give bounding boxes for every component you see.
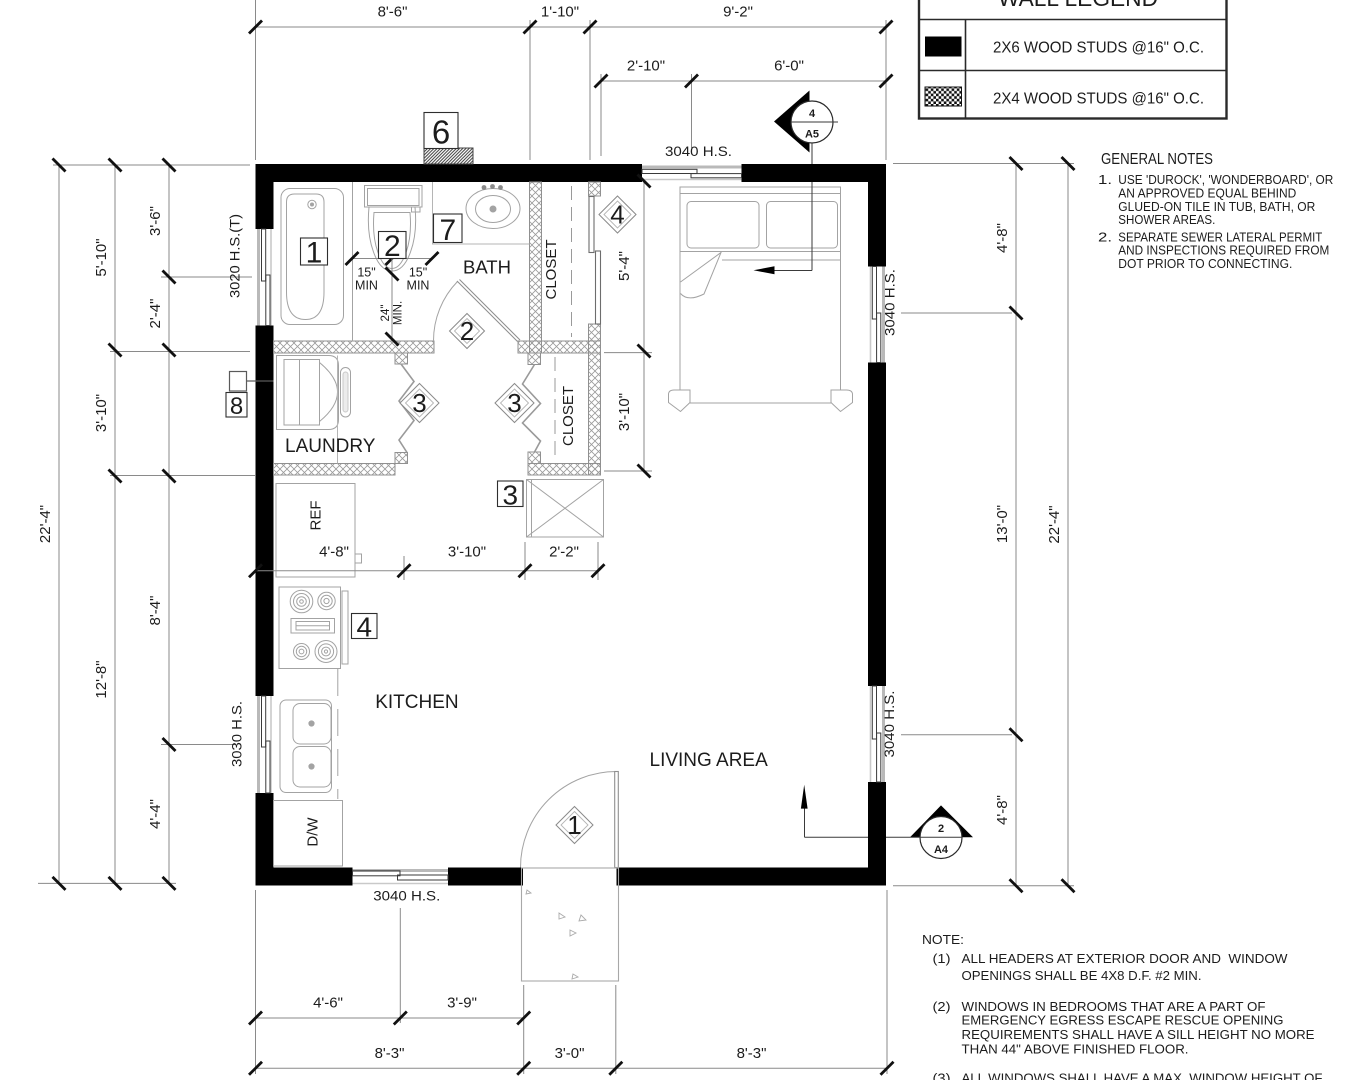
svg-text:MIN: MIN xyxy=(407,279,430,293)
svg-text:WALL LEGEND: WALL LEGEND xyxy=(998,0,1158,11)
svg-text:ALL HEADERS AT EXTERIOR DOOR A: ALL HEADERS AT EXTERIOR DOOR AND WINDOW xyxy=(962,951,1289,966)
svg-text:8'-6": 8'-6" xyxy=(378,4,408,21)
svg-text:1: 1 xyxy=(567,810,581,840)
svg-text:(1): (1) xyxy=(933,951,951,966)
svg-text:CLOSET: CLOSET xyxy=(560,386,577,446)
svg-text:BATH: BATH xyxy=(463,257,511,278)
svg-text:MIN: MIN xyxy=(355,279,378,293)
svg-text:1: 1 xyxy=(306,237,323,270)
svg-text:LAUNDRY: LAUNDRY xyxy=(285,436,376,457)
svg-text:4'-8": 4'-8" xyxy=(994,795,1011,825)
svg-text:13'-0": 13'-0" xyxy=(994,505,1011,543)
svg-text:A4: A4 xyxy=(934,844,949,856)
svg-text:GENERAL NOTES: GENERAL NOTES xyxy=(1101,151,1213,168)
svg-text:6'-0": 6'-0" xyxy=(774,58,804,75)
svg-text:3: 3 xyxy=(412,388,426,418)
svg-text:6: 6 xyxy=(432,114,450,151)
svg-text:4: 4 xyxy=(610,200,624,230)
svg-text:3: 3 xyxy=(503,480,519,511)
svg-text:2: 2 xyxy=(460,316,474,346)
svg-text:3: 3 xyxy=(507,388,521,418)
svg-text:LIVING AREA: LIVING AREA xyxy=(650,750,769,771)
svg-text:4'-8": 4'-8" xyxy=(994,223,1011,253)
svg-text:2: 2 xyxy=(384,230,401,263)
svg-text:1.: 1. xyxy=(1098,172,1112,187)
svg-text:OPENINGS SHALL BE 4X8 D.F. #2: OPENINGS SHALL BE 4X8 D.F. #2 MIN. xyxy=(962,968,1202,983)
svg-text:REF: REF xyxy=(308,501,325,531)
svg-text:2: 2 xyxy=(938,823,944,835)
svg-text:8: 8 xyxy=(230,393,243,420)
svg-text:SHOWER AREAS.: SHOWER AREAS. xyxy=(1118,212,1215,227)
svg-text:15": 15" xyxy=(357,266,375,280)
svg-text:ALL WINDOWS SHALL HAVE A MAX.: ALL WINDOWS SHALL HAVE A MAX. WINDOW HEI… xyxy=(962,1071,1323,1080)
svg-text:2'-2": 2'-2" xyxy=(549,544,579,561)
svg-text:3'-10": 3'-10" xyxy=(616,393,633,431)
svg-text:4'-6": 4'-6" xyxy=(313,995,343,1012)
svg-text:(2): (2) xyxy=(933,999,951,1014)
svg-text:D/W: D/W xyxy=(305,817,322,847)
svg-text:3040 H.S.: 3040 H.S. xyxy=(881,691,897,758)
svg-text:4: 4 xyxy=(809,108,816,120)
svg-text:22'-4": 22'-4" xyxy=(1046,505,1063,543)
svg-text:2X6 WOOD STUDS @16" O.C.: 2X6 WOOD STUDS @16" O.C. xyxy=(993,40,1204,57)
svg-text:12'-8": 12'-8" xyxy=(93,660,110,698)
svg-text:2X4 WOOD STUDS @16" O.C.: 2X4 WOOD STUDS @16" O.C. xyxy=(993,91,1204,108)
svg-text:4: 4 xyxy=(357,612,373,643)
svg-text:NOTE:: NOTE: xyxy=(922,932,964,947)
svg-text:3'-9": 3'-9" xyxy=(447,995,477,1012)
svg-text:8'-3": 8'-3" xyxy=(737,1045,767,1062)
svg-text:(3): (3) xyxy=(933,1071,951,1080)
svg-text:KITCHEN: KITCHEN xyxy=(375,692,458,713)
svg-text:CLOSET: CLOSET xyxy=(543,239,560,299)
svg-text:3'-6": 3'-6" xyxy=(147,206,164,236)
svg-text:3020 H.S.(T): 3020 H.S.(T) xyxy=(227,214,243,298)
svg-text:7: 7 xyxy=(439,214,456,247)
svg-text:REQUIREMENTS SHALL HAVE A SILL: REQUIREMENTS SHALL HAVE A SILL HEIGHT NO… xyxy=(962,1027,1315,1042)
svg-text:1'-10": 1'-10" xyxy=(541,4,579,21)
svg-text:4'-4": 4'-4" xyxy=(147,799,164,829)
svg-text:5'-4": 5'-4" xyxy=(616,251,633,281)
svg-text:3040 H.S.: 3040 H.S. xyxy=(373,888,440,904)
svg-text:24": 24" xyxy=(380,305,392,322)
svg-text:3'-0": 3'-0" xyxy=(555,1045,585,1062)
svg-text:THAN 44" ABOVE FINISHED FLOOR.: THAN 44" ABOVE FINISHED FLOOR. xyxy=(962,1042,1189,1057)
svg-text:15": 15" xyxy=(409,266,427,280)
svg-text:3'-10": 3'-10" xyxy=(448,544,486,561)
svg-text:EMERGENCY EGRESS ESCAPE RESCUE: EMERGENCY EGRESS ESCAPE RESCUE OPENING xyxy=(962,1013,1284,1028)
svg-text:2'-4": 2'-4" xyxy=(147,299,164,329)
svg-text:22'-4": 22'-4" xyxy=(37,505,54,543)
svg-text:3'-10": 3'-10" xyxy=(93,394,110,432)
svg-text:9'-2": 9'-2" xyxy=(723,4,753,21)
svg-text:3040 H.S.: 3040 H.S. xyxy=(882,269,898,336)
svg-text:4'-8": 4'-8" xyxy=(319,544,349,561)
svg-text:2'-10": 2'-10" xyxy=(627,58,665,75)
svg-text:5'-10": 5'-10" xyxy=(93,238,110,276)
svg-text:DOT PRIOR TO CONNECTING.: DOT PRIOR TO CONNECTING. xyxy=(1118,256,1292,271)
svg-text:3030 H.S.: 3030 H.S. xyxy=(229,701,245,767)
svg-text:MIN.: MIN. xyxy=(393,301,405,325)
svg-text:8'-3": 8'-3" xyxy=(375,1045,405,1062)
svg-text:8'-4": 8'-4" xyxy=(147,596,164,626)
svg-text:3040 H.S.: 3040 H.S. xyxy=(665,143,732,159)
svg-text:2.: 2. xyxy=(1098,229,1112,244)
svg-text:A5: A5 xyxy=(805,129,819,141)
